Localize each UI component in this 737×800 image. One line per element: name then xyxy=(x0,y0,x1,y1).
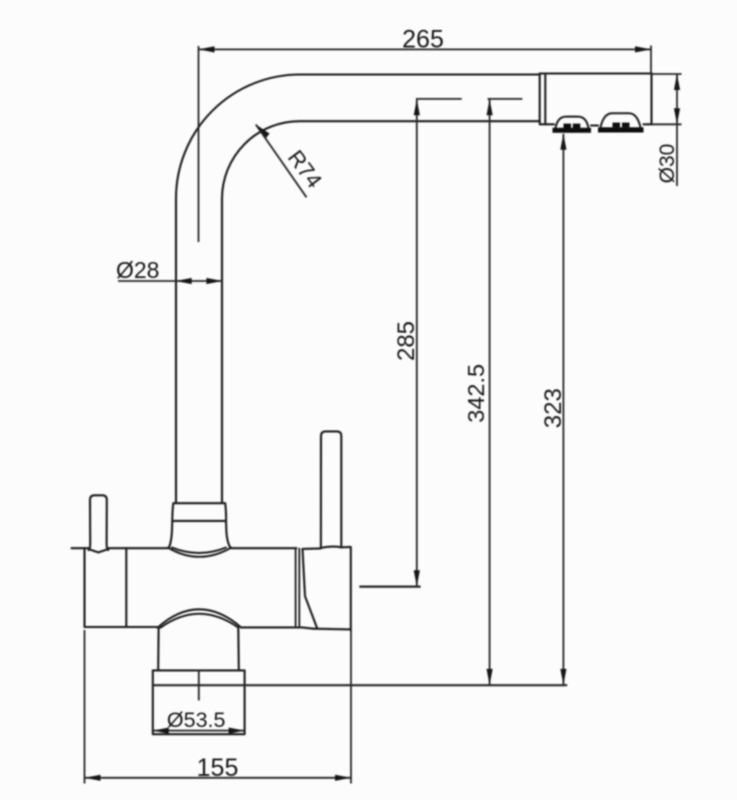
svg-text:285: 285 xyxy=(393,321,420,361)
svg-text:Ø53.5: Ø53.5 xyxy=(167,708,226,732)
svg-text:323: 323 xyxy=(540,388,567,428)
svg-text:155: 155 xyxy=(197,754,239,782)
svg-text:265: 265 xyxy=(402,26,444,54)
svg-text:Ø30: Ø30 xyxy=(656,144,679,184)
svg-text:R74: R74 xyxy=(283,145,327,192)
svg-text:342.5: 342.5 xyxy=(463,364,489,423)
svg-text:Ø28: Ø28 xyxy=(116,257,159,283)
